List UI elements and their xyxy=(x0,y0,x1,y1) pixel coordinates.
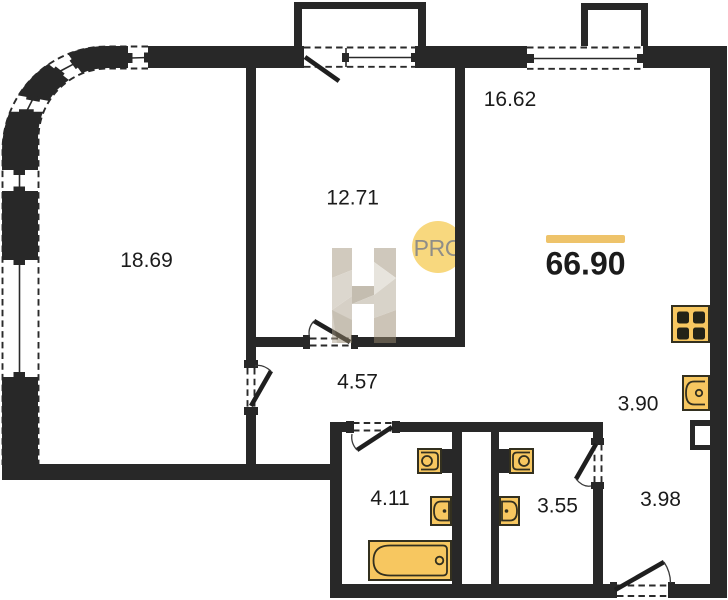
svg-text:66.90: 66.90 xyxy=(545,246,625,282)
svg-text:18.69: 18.69 xyxy=(120,249,173,272)
svg-text:4.11: 4.11 xyxy=(370,487,409,510)
svg-text:4.57: 4.57 xyxy=(337,371,378,394)
svg-text:3.98: 3.98 xyxy=(640,488,681,511)
svg-text:3.55: 3.55 xyxy=(537,495,578,518)
svg-text:3.90: 3.90 xyxy=(618,393,659,416)
svg-text:16.62: 16.62 xyxy=(484,88,537,111)
svg-text:12.71: 12.71 xyxy=(326,187,379,210)
